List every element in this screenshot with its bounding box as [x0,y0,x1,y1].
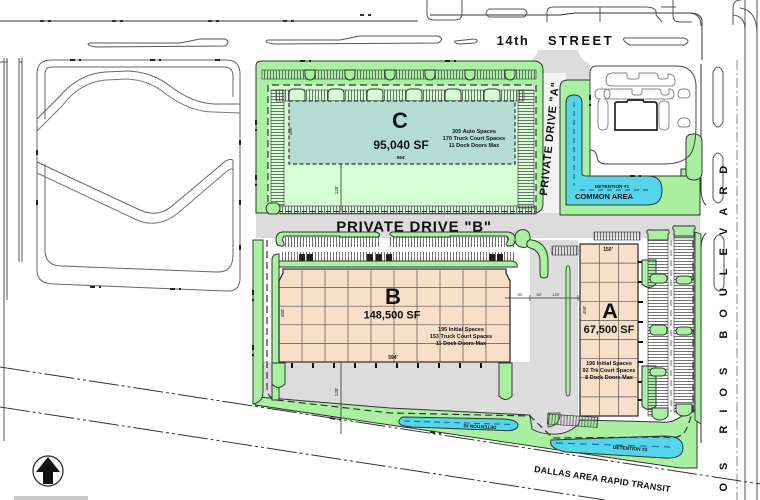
svg-text:305 Auto Spaces: 305 Auto Spaces [452,129,496,135]
svg-text:LOS RIOS BOULEVARD: LOS RIOS BOULEVARD [718,153,730,500]
svg-text:594': 594' [397,155,406,160]
svg-text:C: C [392,108,408,133]
svg-text:B: B [385,284,401,309]
svg-text:150': 150' [603,247,613,253]
svg-text:PRIVATE DRIVE "B": PRIVATE DRIVE "B" [336,219,492,236]
svg-text:148,500 SF: 148,500 SF [364,310,421,322]
svg-text:130': 130' [334,388,339,397]
svg-text:594': 594' [388,355,398,361]
svg-text:195 Initial Spaces: 195 Initial Spaces [438,327,484,333]
svg-text:170 Truck Court Spaces: 170 Truck Court Spaces [443,136,505,142]
svg-text:196 Initial Spaces: 196 Initial Spaces [586,361,632,367]
svg-text:67,500 SF: 67,500 SF [584,324,635,336]
svg-text:STREET: STREET [548,33,614,48]
svg-text:A: A [602,299,618,323]
svg-text:30': 30' [536,292,541,297]
svg-text:DETENTION #1: DETENTION #1 [595,184,630,190]
svg-text:95,040 SF: 95,040 SF [373,138,428,152]
svg-text:30': 30' [517,292,522,297]
svg-text:125': 125' [334,186,339,195]
svg-text:92 Trk Court Spaces: 92 Trk Court Spaces [583,368,636,374]
svg-text:COMMON AREA: COMMON AREA [575,192,634,201]
svg-text:160': 160' [288,127,293,136]
svg-text:480': 480' [280,309,285,318]
svg-text:153 Truck Court Spaces: 153 Truck Court Spaces [430,334,492,340]
svg-text:14th: 14th [497,33,530,48]
svg-text:120': 120' [552,292,560,297]
svg-text:11 Dock Doors Max: 11 Dock Doors Max [436,341,487,347]
svg-text:450': 450' [582,306,587,315]
svg-text:11 Dock Doors Max: 11 Dock Doors Max [449,143,500,149]
svg-text:8 Dock Doors Max: 8 Dock Doors Max [585,375,634,381]
